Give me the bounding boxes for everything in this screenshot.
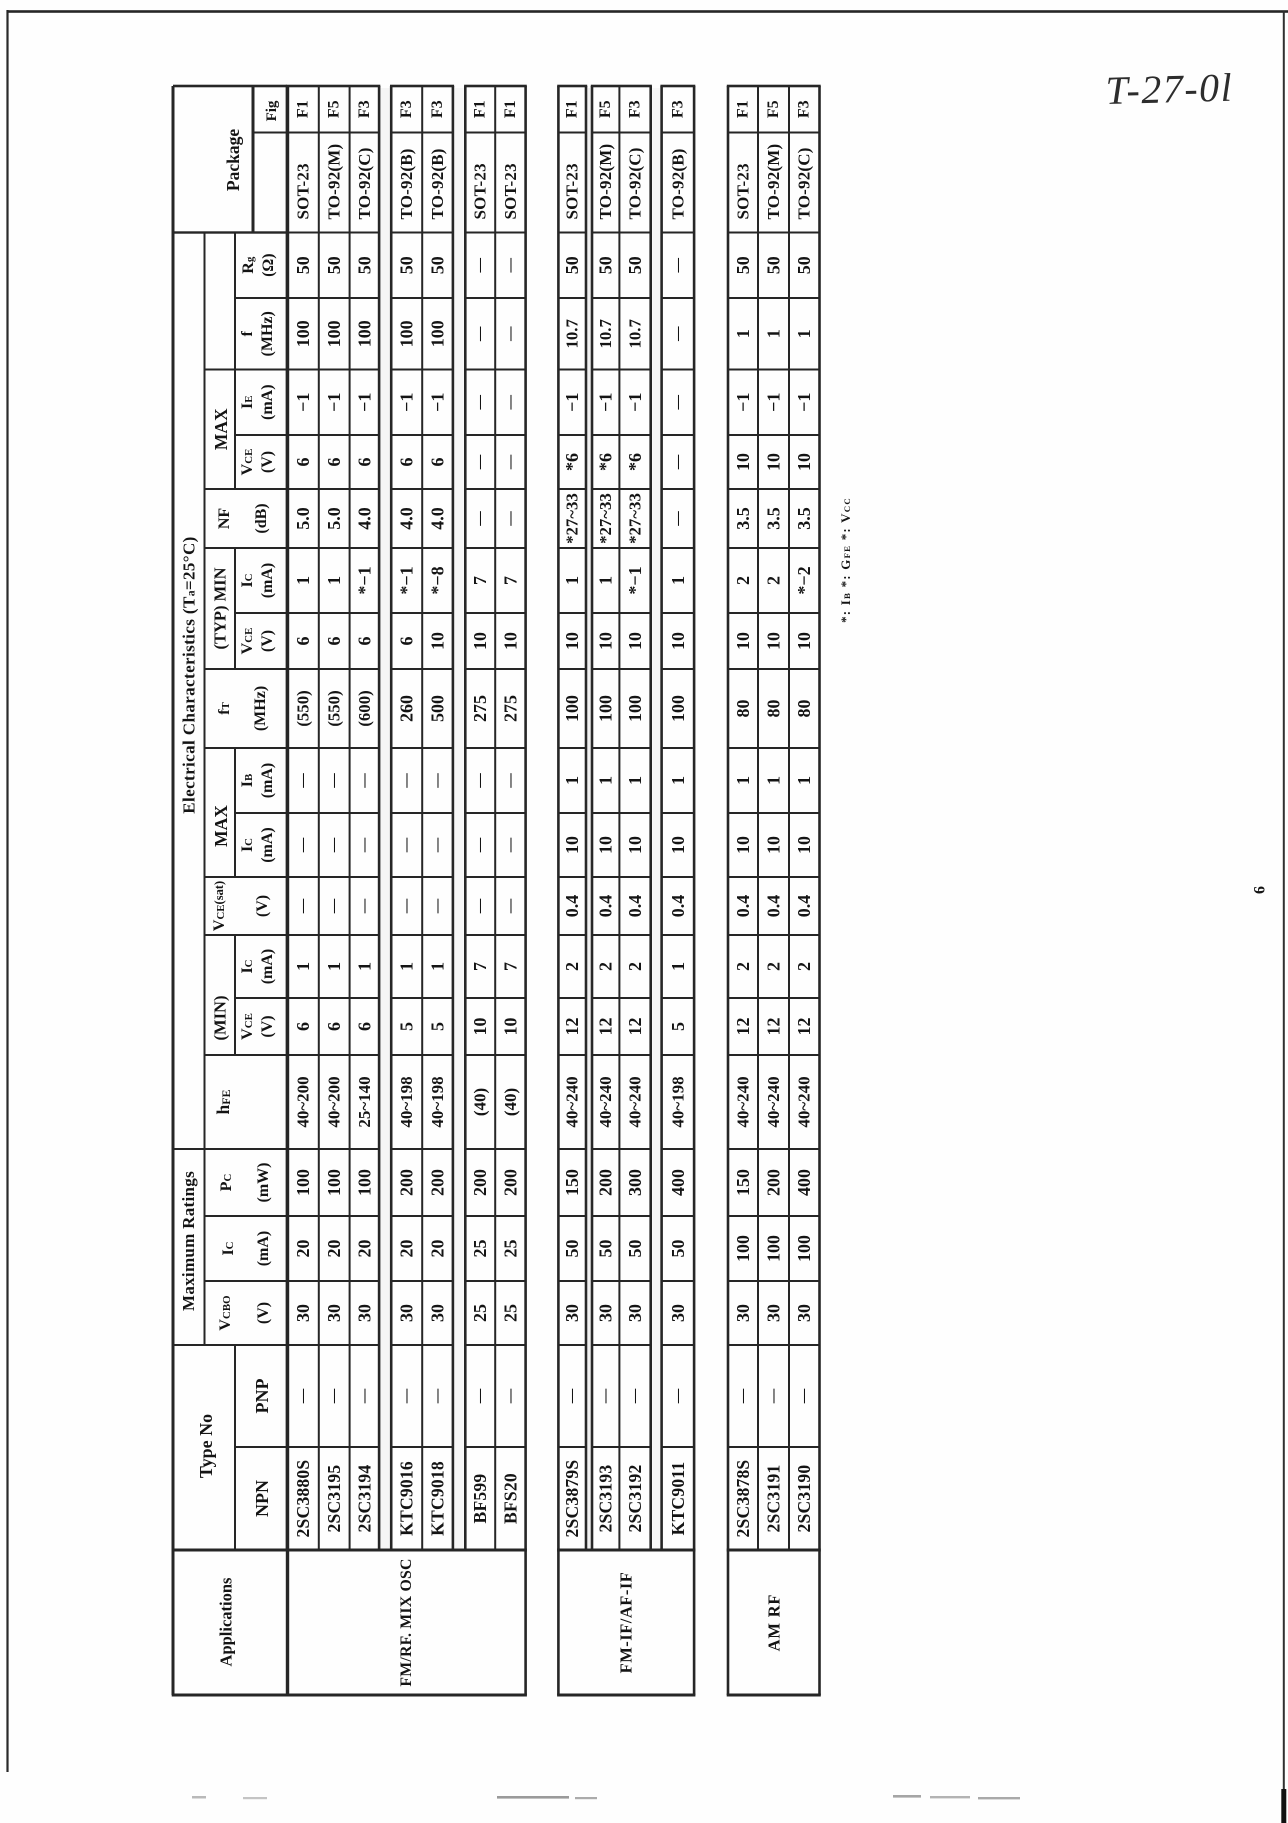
svg-text:7: 7 [500, 962, 520, 971]
svg-text:TO-92(B): TO-92(B) [397, 148, 416, 219]
svg-text:—: — [502, 394, 518, 410]
svg-text:—: — [399, 773, 415, 789]
svg-text:—: — [399, 898, 415, 914]
svg-text:40~198: 40~198 [428, 1076, 447, 1127]
svg-text:40~198: 40~198 [397, 1076, 416, 1127]
svg-text:VCE: VCE [239, 449, 256, 476]
svg-text:2SC3880S: 2SC3880S [293, 1460, 313, 1538]
svg-text:6: 6 [354, 1022, 374, 1031]
svg-text:100: 100 [354, 320, 374, 347]
svg-text:30: 30 [596, 1304, 616, 1322]
svg-text:30: 30 [293, 1304, 313, 1322]
svg-text:—: — [502, 898, 518, 914]
svg-text:−1: −1 [596, 393, 616, 412]
svg-text:12: 12 [562, 1018, 582, 1036]
svg-text:(TYP) MIN: (TYP) MIN [211, 567, 230, 649]
svg-text:PC: PC [218, 1174, 235, 1192]
svg-text:IC: IC [220, 1241, 237, 1255]
svg-text:SOT-23: SOT-23 [471, 163, 490, 219]
svg-text:10.7: 10.7 [626, 319, 645, 348]
svg-text:275: 275 [470, 695, 490, 722]
svg-text:(mA): (mA) [259, 563, 276, 599]
svg-text:3.5: 3.5 [794, 507, 814, 530]
svg-text:(mA): (mA) [255, 1231, 272, 1267]
svg-text:10: 10 [500, 632, 520, 650]
svg-text:40~240: 40~240 [764, 1076, 783, 1127]
svg-text:30: 30 [562, 1304, 582, 1322]
svg-text:10: 10 [470, 632, 490, 650]
svg-text:25: 25 [470, 1304, 490, 1322]
svg-text:(550): (550) [325, 690, 344, 726]
svg-text:*27~33: *27~33 [596, 493, 615, 544]
svg-text:—: — [502, 1388, 518, 1404]
svg-text:6: 6 [324, 637, 344, 646]
svg-text:(MHz): (MHz) [259, 311, 276, 356]
svg-text:TO-92(B): TO-92(B) [668, 148, 687, 219]
svg-text:50: 50 [625, 1240, 645, 1258]
svg-text:T-27-0l: T-27-0l [1105, 65, 1234, 113]
svg-text:2SC3191: 2SC3191 [764, 1465, 784, 1533]
svg-text:*−1: *−1 [397, 566, 417, 594]
svg-text:—: — [796, 1388, 812, 1404]
svg-text:F1: F1 [472, 100, 489, 118]
svg-text:—: — [326, 898, 342, 914]
svg-text:10: 10 [500, 1018, 520, 1036]
svg-text:−1: −1 [733, 393, 753, 412]
svg-text:6: 6 [354, 637, 374, 646]
svg-text:—: — [670, 394, 686, 410]
svg-text:50: 50 [596, 1240, 616, 1258]
svg-text:—: — [295, 773, 311, 789]
svg-text:50: 50 [324, 256, 344, 274]
svg-text:—: — [295, 837, 311, 853]
svg-text:VCE(sat): VCE(sat) [211, 881, 228, 931]
svg-text:(mA): (mA) [259, 763, 276, 799]
svg-text:12: 12 [764, 1018, 784, 1036]
svg-text:10: 10 [562, 836, 582, 854]
svg-text:(MHz): (MHz) [252, 686, 269, 731]
svg-text:10: 10 [794, 836, 814, 854]
svg-text:—: — [472, 837, 488, 853]
svg-text:—: — [502, 511, 518, 527]
svg-text:10: 10 [596, 836, 616, 854]
svg-text:—: — [295, 1388, 311, 1404]
svg-text:0.4: 0.4 [764, 895, 784, 918]
svg-text:30: 30 [794, 1304, 814, 1322]
svg-text:1: 1 [293, 576, 313, 585]
svg-text:7: 7 [500, 576, 520, 585]
svg-text:−1: −1 [764, 393, 784, 412]
svg-text:1: 1 [733, 329, 753, 338]
svg-text:*6: *6 [596, 453, 616, 471]
svg-text:—: — [472, 511, 488, 527]
svg-text:—: — [627, 1388, 643, 1404]
svg-text:*−1: *−1 [354, 566, 374, 594]
svg-text:50: 50 [668, 1240, 688, 1258]
svg-text:—: — [472, 773, 488, 789]
svg-text:100: 100 [733, 1235, 753, 1262]
svg-text:50: 50 [764, 256, 784, 274]
svg-text:fT: fT [216, 701, 233, 714]
svg-text:5: 5 [428, 1022, 448, 1031]
svg-text:100: 100 [293, 320, 313, 347]
svg-text:TO-92(M): TO-92(M) [764, 144, 783, 220]
svg-text:MAX: MAX [211, 408, 231, 450]
svg-text:—: — [326, 1388, 342, 1404]
svg-text:6: 6 [428, 458, 448, 467]
svg-text:150: 150 [562, 1169, 582, 1196]
svg-text:40~240: 40~240 [563, 1076, 582, 1127]
svg-text:10: 10 [794, 453, 814, 471]
svg-text:2SC3190: 2SC3190 [794, 1465, 814, 1533]
svg-text:(mW): (mW) [255, 1163, 272, 1203]
svg-text:1: 1 [764, 776, 784, 785]
svg-text:—: — [670, 454, 686, 470]
svg-text:0.4: 0.4 [668, 895, 688, 918]
svg-text:IC: IC [239, 838, 256, 852]
svg-text:*−8: *−8 [428, 566, 448, 594]
svg-text:F3: F3 [356, 100, 373, 118]
svg-text:—: — [670, 257, 686, 273]
svg-text:200: 200 [596, 1169, 616, 1196]
svg-text:30: 30 [733, 1304, 753, 1322]
svg-text:Package: Package [223, 129, 243, 191]
svg-text:Type No: Type No [196, 1414, 216, 1478]
svg-text:BF599: BF599 [470, 1474, 490, 1524]
svg-text:TO-92(B): TO-92(B) [428, 148, 447, 219]
svg-text:(mA): (mA) [259, 384, 276, 420]
svg-text:Rg: Rg [240, 256, 257, 274]
svg-text:1: 1 [324, 962, 344, 971]
svg-text:KTC9011: KTC9011 [668, 1462, 688, 1536]
svg-text:80: 80 [733, 700, 753, 718]
svg-text:VCE: VCE [239, 628, 256, 655]
svg-text:10: 10 [764, 632, 784, 650]
svg-text:100: 100 [428, 320, 448, 347]
svg-text:30: 30 [625, 1304, 645, 1322]
svg-text:2SC3193: 2SC3193 [596, 1465, 616, 1533]
svg-text:10: 10 [733, 632, 753, 650]
svg-text:*−2: *−2 [794, 566, 814, 594]
svg-text:100: 100 [596, 695, 616, 722]
svg-text:SOT-23: SOT-23 [734, 163, 753, 219]
svg-text:1: 1 [625, 776, 645, 785]
svg-text:MAX: MAX [211, 805, 231, 847]
svg-text:SOT-23: SOT-23 [563, 163, 582, 219]
svg-text:—: — [430, 837, 446, 853]
svg-text:*6: *6 [562, 453, 582, 471]
svg-text:5: 5 [668, 1022, 688, 1031]
svg-text:FM-IF/AF-IF: FM-IF/AF-IF [617, 1572, 636, 1674]
svg-text:150: 150 [733, 1169, 753, 1196]
svg-text:20: 20 [293, 1240, 313, 1258]
svg-text:10: 10 [470, 1018, 490, 1036]
svg-text:2: 2 [764, 962, 784, 971]
svg-text:12: 12 [733, 1018, 753, 1036]
svg-text:6: 6 [293, 1022, 313, 1031]
svg-text:0.4: 0.4 [562, 895, 582, 918]
svg-text:(V): (V) [259, 1015, 276, 1037]
svg-text:25: 25 [500, 1304, 520, 1322]
svg-text:IC: IC [239, 959, 256, 973]
svg-text:0.4: 0.4 [625, 895, 645, 918]
svg-text:—: — [670, 326, 686, 342]
svg-text:100: 100 [562, 695, 582, 722]
svg-text:100: 100 [625, 695, 645, 722]
svg-text:200: 200 [428, 1169, 448, 1196]
svg-text:−1: −1 [562, 393, 582, 412]
svg-text:2: 2 [562, 962, 582, 971]
svg-text:(Ω): (Ω) [260, 253, 277, 276]
svg-text:1: 1 [397, 962, 417, 971]
svg-text:4.0: 4.0 [397, 507, 417, 530]
svg-text:2SC3879S: 2SC3879S [562, 1460, 582, 1538]
svg-text:IB: IB [239, 774, 256, 788]
svg-text:AM RF: AM RF [764, 1594, 783, 1652]
svg-text:6: 6 [324, 458, 344, 467]
svg-text:(V): (V) [259, 630, 276, 652]
svg-text:100: 100 [354, 1169, 374, 1196]
svg-text:10: 10 [625, 836, 645, 854]
svg-text:—: — [399, 1388, 415, 1404]
svg-text:20: 20 [397, 1240, 417, 1258]
svg-text:—: — [472, 326, 488, 342]
svg-text:300: 300 [625, 1169, 645, 1196]
svg-text:30: 30 [354, 1304, 374, 1322]
svg-text:TO-92(C): TO-92(C) [626, 147, 645, 219]
svg-text:100: 100 [397, 320, 417, 347]
svg-text:SOT-23: SOT-23 [293, 163, 312, 219]
svg-text:2SC3878S: 2SC3878S [733, 1460, 753, 1538]
svg-text:50: 50 [562, 1240, 582, 1258]
svg-text:NF: NF [216, 508, 233, 530]
svg-text:*: IB *: GFE *: VCC: *: IB *: GFE *: VCC [838, 497, 853, 623]
svg-text:500: 500 [428, 695, 448, 722]
svg-text:7: 7 [470, 576, 490, 585]
svg-text:6: 6 [293, 637, 313, 646]
svg-text:100: 100 [668, 695, 688, 722]
svg-text:—: — [356, 1388, 372, 1404]
svg-text:*−1: *−1 [625, 566, 645, 594]
svg-text:*27~33: *27~33 [626, 493, 645, 544]
svg-text:1: 1 [562, 576, 582, 585]
svg-text:−1: −1 [397, 393, 417, 412]
svg-text:F1: F1 [564, 100, 581, 118]
svg-text:F1: F1 [735, 100, 752, 118]
svg-text:1: 1 [428, 962, 448, 971]
svg-text:2: 2 [625, 962, 645, 971]
svg-text:6: 6 [397, 637, 417, 646]
svg-text:10: 10 [596, 632, 616, 650]
svg-text:200: 200 [764, 1169, 784, 1196]
svg-text:−1: −1 [428, 393, 448, 412]
svg-text:(V): (V) [255, 1302, 272, 1324]
svg-text:50: 50 [625, 256, 645, 274]
svg-text:6: 6 [1252, 886, 1269, 894]
svg-text:F3: F3 [398, 100, 415, 118]
svg-text:VCE: VCE [239, 1013, 256, 1040]
svg-text:1: 1 [324, 576, 344, 585]
svg-text:—: — [430, 898, 446, 914]
svg-text:(40): (40) [471, 1088, 490, 1116]
svg-text:1: 1 [293, 962, 313, 971]
svg-text:25~140: 25~140 [355, 1076, 374, 1127]
svg-text:—: — [356, 773, 372, 789]
svg-text:−1: −1 [625, 393, 645, 412]
svg-text:50: 50 [293, 256, 313, 274]
svg-text:1: 1 [764, 329, 784, 338]
svg-text:25: 25 [470, 1240, 490, 1258]
svg-text:40~240: 40~240 [795, 1076, 814, 1127]
svg-text:(600): (600) [355, 690, 374, 726]
svg-text:260: 260 [397, 695, 417, 722]
svg-text:10: 10 [668, 836, 688, 854]
svg-text:F3: F3 [796, 100, 813, 118]
svg-text:SOT-23: SOT-23 [501, 163, 520, 219]
svg-text:1: 1 [733, 776, 753, 785]
svg-text:1: 1 [794, 329, 814, 338]
svg-text:VCBO: VCBO [217, 1295, 234, 1330]
svg-text:F3: F3 [669, 100, 686, 118]
svg-text:—: — [430, 1388, 446, 1404]
svg-text:20: 20 [354, 1240, 374, 1258]
svg-text:30: 30 [397, 1304, 417, 1322]
svg-text:100: 100 [293, 1169, 313, 1196]
svg-text:50: 50 [397, 256, 417, 274]
svg-text:0.4: 0.4 [794, 895, 814, 918]
svg-text:2: 2 [733, 962, 753, 971]
svg-text:100: 100 [324, 1169, 344, 1196]
svg-text:40~240: 40~240 [626, 1076, 645, 1127]
svg-text:−1: −1 [354, 393, 374, 412]
svg-text:0.4: 0.4 [596, 895, 616, 918]
svg-text:30: 30 [428, 1304, 448, 1322]
svg-text:BFS20: BFS20 [500, 1473, 520, 1524]
svg-text:Applications: Applications [217, 1577, 236, 1667]
svg-text:12: 12 [625, 1018, 645, 1036]
svg-text:TO-92(C): TO-92(C) [355, 147, 374, 219]
svg-text:F3: F3 [429, 100, 446, 118]
svg-text:F5: F5 [765, 100, 782, 118]
svg-text:12: 12 [794, 1018, 814, 1036]
svg-text:2: 2 [764, 576, 784, 585]
svg-text:—: — [356, 898, 372, 914]
svg-text:—: — [564, 1388, 580, 1404]
svg-text:1: 1 [668, 576, 688, 585]
svg-text:(dB): (dB) [253, 503, 270, 533]
svg-text:1: 1 [596, 576, 616, 585]
svg-text:—: — [502, 837, 518, 853]
svg-text:200: 200 [470, 1169, 490, 1196]
svg-text:FM/RF. MIX OSC: FM/RF. MIX OSC [398, 1558, 415, 1686]
svg-text:80: 80 [764, 700, 784, 718]
svg-text:—: — [472, 898, 488, 914]
svg-text:20: 20 [428, 1240, 448, 1258]
svg-text:PNP: PNP [252, 1379, 272, 1414]
svg-text:30: 30 [764, 1304, 784, 1322]
svg-text:6: 6 [354, 458, 374, 467]
svg-text:—: — [502, 257, 518, 273]
svg-text:4.0: 4.0 [428, 507, 448, 530]
svg-text:30: 30 [324, 1304, 344, 1322]
svg-text:1: 1 [668, 776, 688, 785]
svg-text:(550): (550) [293, 690, 312, 726]
svg-text:10: 10 [733, 453, 753, 471]
svg-text:30: 30 [668, 1304, 688, 1322]
svg-text:2: 2 [733, 576, 753, 585]
svg-text:10: 10 [764, 836, 784, 854]
svg-text:10: 10 [733, 836, 753, 854]
svg-text:10: 10 [428, 632, 448, 650]
svg-text:2SC3195: 2SC3195 [324, 1465, 344, 1533]
svg-text:10: 10 [764, 453, 784, 471]
svg-text:—: — [735, 1388, 751, 1404]
svg-text:400: 400 [794, 1169, 814, 1196]
svg-text:−1: −1 [794, 393, 814, 412]
svg-text:5.0: 5.0 [293, 507, 313, 530]
svg-text:10: 10 [794, 632, 814, 650]
svg-text:—: — [430, 773, 446, 789]
svg-text:(mA): (mA) [259, 827, 276, 863]
svg-text:TO-92(C): TO-92(C) [795, 147, 814, 219]
svg-text:Fig: Fig [264, 100, 280, 121]
svg-text:40~200: 40~200 [325, 1076, 344, 1127]
svg-text:2: 2 [794, 962, 814, 971]
svg-text:1: 1 [668, 962, 688, 971]
svg-text:Electrical Characteristics (T: Electrical Characteristics (Ta=25°C) [179, 536, 198, 813]
svg-text:—: — [295, 898, 311, 914]
svg-text:hFE: hFE [213, 1089, 233, 1114]
svg-text:40~240: 40~240 [734, 1076, 753, 1127]
svg-text:—: — [472, 257, 488, 273]
svg-text:TO-92(M): TO-92(M) [596, 144, 615, 220]
svg-text:5: 5 [397, 1022, 417, 1031]
svg-text:2SC3192: 2SC3192 [625, 1465, 645, 1533]
svg-text:—: — [598, 1388, 614, 1404]
svg-text:—: — [502, 326, 518, 342]
svg-text:(mA): (mA) [259, 949, 276, 985]
svg-text:40~198: 40~198 [668, 1076, 687, 1127]
svg-text:F3: F3 [627, 100, 644, 118]
svg-text:—: — [356, 837, 372, 853]
svg-text:—: — [766, 1388, 782, 1404]
svg-text:5.0: 5.0 [324, 507, 344, 530]
svg-text:(MIN): (MIN) [211, 996, 230, 1041]
svg-text:25: 25 [500, 1240, 520, 1258]
svg-text:50: 50 [354, 256, 374, 274]
svg-text:F5: F5 [597, 100, 614, 118]
svg-text:50: 50 [733, 256, 753, 274]
svg-text:F1: F1 [294, 100, 311, 118]
svg-text:100: 100 [324, 320, 344, 347]
svg-text:50: 50 [794, 256, 814, 274]
svg-text:200: 200 [397, 1169, 417, 1196]
svg-text:1: 1 [562, 776, 582, 785]
svg-text:F5: F5 [326, 100, 343, 118]
svg-text:NPN: NPN [252, 1480, 272, 1517]
svg-text:f: f [239, 330, 256, 336]
svg-text:−1: −1 [324, 393, 344, 412]
svg-text:—: — [326, 773, 342, 789]
svg-text:50: 50 [428, 256, 448, 274]
svg-text:1: 1 [596, 776, 616, 785]
svg-text:0.4: 0.4 [733, 895, 753, 918]
svg-text:—: — [670, 1388, 686, 1404]
svg-text:—: — [399, 837, 415, 853]
svg-text:KTC9018: KTC9018 [428, 1461, 448, 1536]
svg-text:(40): (40) [501, 1088, 520, 1116]
svg-text:1: 1 [354, 962, 374, 971]
